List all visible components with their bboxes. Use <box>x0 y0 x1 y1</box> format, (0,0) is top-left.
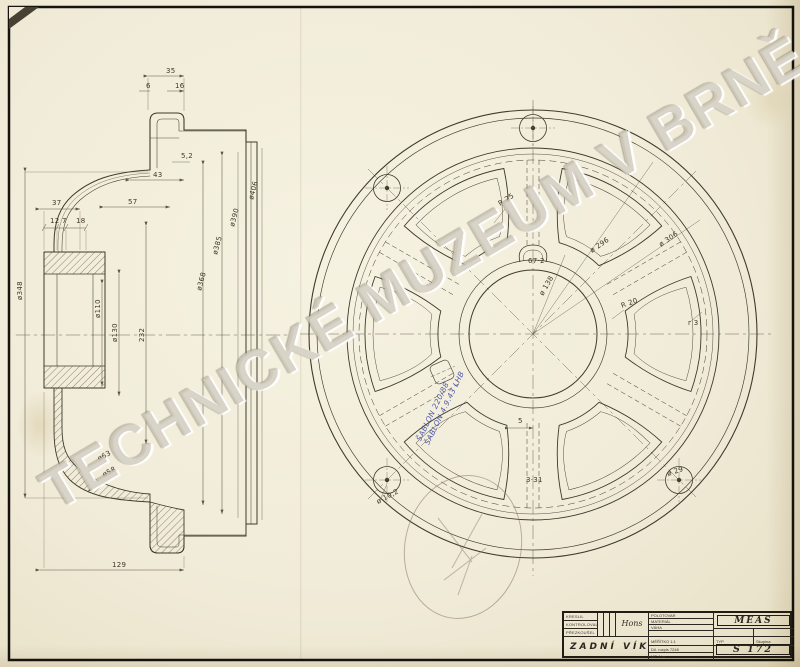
dimension-label: ø 10,2 <box>375 487 400 505</box>
dimension-label: ø 306 <box>658 230 680 249</box>
torn-corner-highlight <box>9 7 25 19</box>
front-view <box>300 100 774 576</box>
dimension-label: ø58 <box>101 465 117 479</box>
part-title: ZADNÍ VÍKO <box>564 637 649 660</box>
dimension-label: 7 <box>62 217 67 225</box>
signature: Hons <box>616 613 649 637</box>
dimension-label: r 3 <box>688 319 698 327</box>
section-view <box>16 113 288 553</box>
dimension-label: ø110 <box>94 299 102 318</box>
drawing-number: S 172 <box>716 644 790 655</box>
dimension-label: ø348 <box>16 281 24 300</box>
dimension-label: 43 <box>153 171 163 179</box>
dimension-label: 5,2 <box>181 152 193 160</box>
scanned-technical-drawing: { "document": { "watermark": "TECHNICKÉ … <box>0 0 800 667</box>
titleblock-row-kontroloval: KONTROLOVAL <box>564 621 598 629</box>
dimension-label: 57 <box>128 198 138 206</box>
dimension-label: ø63 <box>96 449 112 463</box>
dimension-label: ø130 <box>111 323 119 342</box>
dimension-label: 16 <box>175 82 185 90</box>
dimension-label: 18 <box>76 217 86 225</box>
dimension-label: 12 <box>50 217 60 225</box>
dimension-label: 6 <box>146 82 151 90</box>
dimension-label: ø 138 <box>538 274 556 297</box>
titleblock-row-kreslil: KRESLIL <box>564 613 598 621</box>
blueprint-linework: 356165,243573712718ø348ø110ø130232ø368ø3… <box>0 0 800 667</box>
dimension-label: ø390 <box>228 207 241 227</box>
scale-field: MĚŘÍTKO 1:1 <box>649 637 714 646</box>
dimension-label: R 25 <box>497 192 516 208</box>
dimension-label: 129 <box>112 561 126 569</box>
dimension-label: ø406 <box>247 180 260 201</box>
dimension-label: 37 <box>52 199 62 207</box>
dimension-label: 232 <box>138 328 146 342</box>
dimension-label: 67·2 <box>528 257 545 265</box>
titleblock-row-prezkousel: PŘEZKOUŠEL <box>564 629 598 637</box>
mt-field: MT 4 ks <box>649 653 714 660</box>
rozpis-field: Díl. rozpis 7246 <box>649 646 714 653</box>
dimension-label: 5 <box>518 417 523 425</box>
dimension-label: 3·31 <box>526 476 543 484</box>
drawing-frame <box>9 7 793 660</box>
title-block: KRESLIL KONTROLOVAL PŘEZKOUŠEL Hons POLO… <box>562 611 792 658</box>
dimension-label: 35 <box>166 67 176 75</box>
dimension-label: ø368 <box>195 271 208 291</box>
company-name: MEAS <box>717 615 790 626</box>
